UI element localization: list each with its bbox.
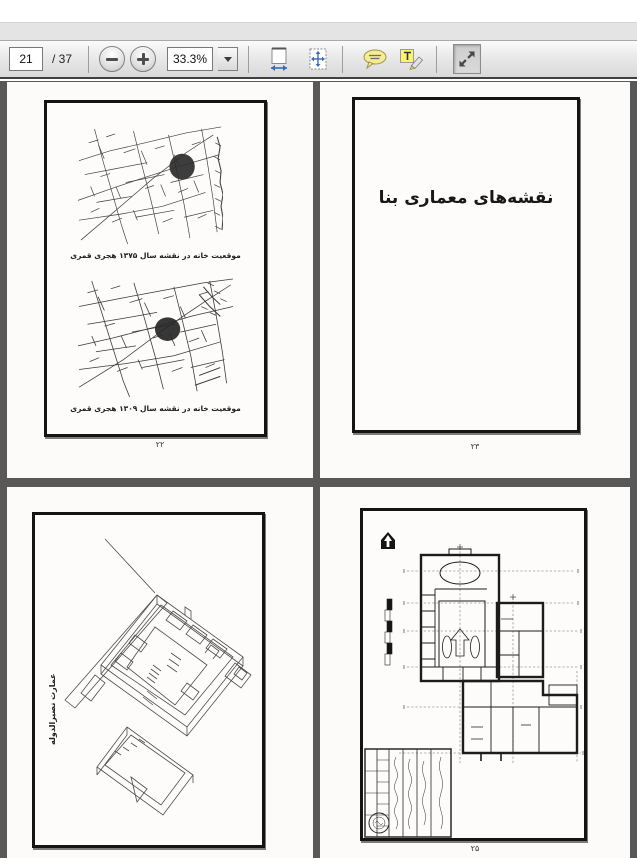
- zoom-in-button[interactable]: [130, 46, 156, 72]
- page-total-label: / 37: [52, 52, 72, 66]
- historical-map-1375: [77, 123, 223, 247]
- pdf-page-22: موقعیت خانه در نقشه سال ۱۳۷۵ هجری قمری: [7, 82, 313, 478]
- map-caption-1375: موقعیت خانه در نقشه سال ۱۳۷۵ هجری قمری: [47, 251, 264, 260]
- pdf-viewer-window: / 37: [0, 0, 637, 858]
- folio-number-22: ۲۲: [7, 440, 313, 449]
- menu-bar-strip: [0, 22, 637, 41]
- map-caption-1309: موقعیت خانه در نقشه سال ۱۳۰۹ هجری قمری: [47, 404, 264, 413]
- folio-number-25: ۲۵: [320, 844, 630, 853]
- historical-map-1309: [77, 277, 235, 400]
- zoom-out-icon: [106, 58, 118, 61]
- toolbar-separator: [88, 46, 89, 73]
- fullscreen-icon: [457, 49, 477, 69]
- north-arrow-icon: [381, 532, 395, 549]
- pdf-toolbar: / 37: [0, 41, 637, 79]
- building-name-label: عمارت نصیرالدوله: [41, 635, 55, 755]
- page-number-input[interactable]: [9, 47, 43, 71]
- pdf-page-24: عمارت نصیرالدوله: [7, 487, 313, 858]
- title-block: [365, 749, 451, 837]
- zoom-dropdown-button[interactable]: [218, 47, 238, 71]
- zoom-level-input[interactable]: [167, 47, 213, 71]
- fit-width-button[interactable]: [265, 44, 293, 74]
- comment-icon: [362, 48, 388, 70]
- document-scroll-area[interactable]: موقعیت خانه در نقشه سال ۱۳۷۵ هجری قمری: [0, 81, 637, 858]
- page22-print-frame: موقعیت خانه در نقشه سال ۱۳۷۵ هجری قمری: [44, 100, 267, 437]
- pdf-page-25: ۲۵: [320, 487, 630, 858]
- floor-plan-drawing: [363, 511, 584, 838]
- zoom-dropdown-icon: [224, 57, 232, 62]
- fit-width-icon: [268, 47, 290, 71]
- page23-print-frame: نقشه‌های معماری بنا: [352, 97, 580, 433]
- highlight-text-icon: [399, 48, 425, 70]
- axonometric-drawing: [35, 515, 262, 845]
- page25-print-frame: [360, 508, 587, 841]
- fit-page-button[interactable]: [304, 44, 332, 74]
- chapter-title: نقشه‌های معماری بنا: [355, 188, 577, 208]
- house-location-blob: [155, 317, 180, 341]
- house-location-blob: [169, 154, 194, 180]
- highlight-text-button[interactable]: [398, 44, 426, 74]
- fullscreen-button[interactable]: [453, 44, 481, 74]
- pdf-page-23: نقشه‌های معماری بنا ۲۳: [320, 82, 630, 478]
- comment-button[interactable]: [361, 44, 389, 74]
- toolbar-separator: [436, 46, 437, 73]
- zoom-out-button[interactable]: [99, 46, 125, 72]
- toolbar-separator: [248, 46, 249, 73]
- scale-bar: [385, 599, 392, 665]
- folio-number-23: ۲۳: [320, 442, 630, 451]
- toolbar-separator: [342, 46, 343, 73]
- page24-print-frame: عمارت نصیرالدوله: [32, 512, 265, 848]
- window-top-strip: [0, 0, 637, 22]
- fit-page-icon: [307, 47, 329, 71]
